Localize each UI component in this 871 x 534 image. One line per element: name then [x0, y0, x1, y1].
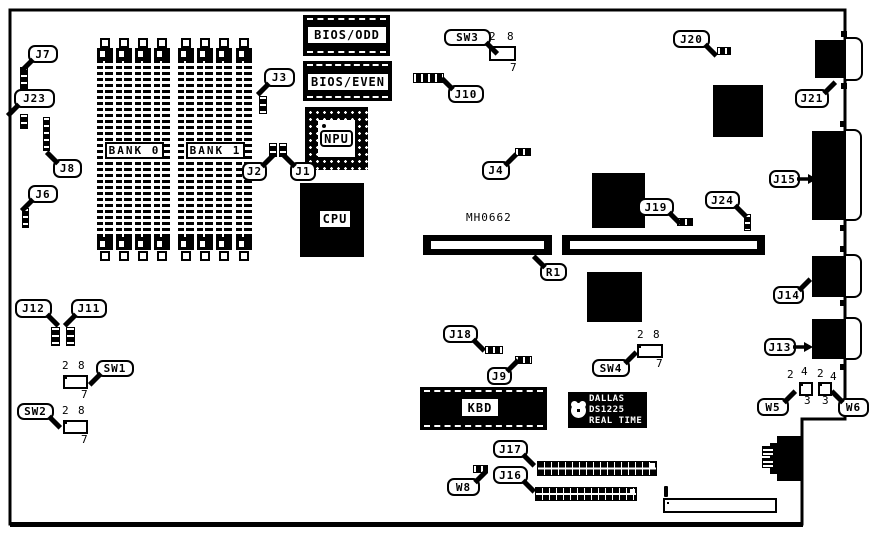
simm-mount-top [138, 38, 148, 48]
callout-j12: J12 [15, 299, 52, 318]
bank-0-label: BANK 0 [105, 142, 164, 159]
slot-left [423, 235, 552, 255]
power-connector-pins [664, 486, 777, 498]
din-pin-1 [762, 458, 774, 468]
callout-j8: J8 [53, 159, 82, 178]
callout-j15: J15 [769, 170, 800, 188]
simm-mount-bottom [157, 251, 167, 261]
keyboard-din-connector-mid [770, 443, 801, 474]
callout-sw2: SW2 [17, 403, 54, 420]
pin-number-label-6: 2 [62, 406, 69, 416]
simm-cap-top [197, 48, 213, 61]
simm-cap-bottom [178, 237, 194, 250]
dallas-chip-text: DALLAS DS1225 REAL TIME [589, 394, 642, 427]
callout-j9: J9 [487, 367, 512, 385]
bank-1-label: BANK 1 [186, 142, 245, 159]
cpu-chip-label: CPU [320, 211, 350, 227]
edge-screw-0 [841, 31, 847, 37]
simm-mount-top [239, 38, 249, 48]
simm-mount-bottom [138, 251, 148, 261]
pin-number-label-11: 7 [656, 359, 663, 369]
callout-j4: J4 [482, 161, 510, 180]
callout-j3: J3 [264, 68, 295, 87]
callout-sw1: SW1 [96, 360, 134, 377]
callout-j18: J18 [443, 325, 478, 343]
slot-right-inner [570, 241, 757, 249]
power-cell-11 [667, 502, 669, 504]
sw1-block-cell-4 [65, 377, 67, 379]
pin-number-label-7: 8 [78, 406, 85, 416]
j8-header [43, 117, 50, 151]
simm-cap-top [135, 48, 151, 61]
simm-cap-bottom [97, 237, 113, 250]
pin-number-label-2: 7 [510, 63, 517, 73]
slot-right [562, 235, 765, 255]
j21-connector-body [815, 40, 844, 78]
j18-header [485, 346, 503, 354]
pin-number-label-12: 2 [787, 370, 794, 380]
simm-mount-top [157, 38, 167, 48]
edge-screw-6 [840, 364, 846, 370]
callout-j6: J6 [28, 185, 58, 203]
sw2-block [63, 420, 88, 434]
npu-chip-pin1-dot [322, 124, 326, 128]
board-bottom-edge [10, 522, 803, 527]
simm-mount-top [100, 38, 110, 48]
simm-mount-bottom [219, 251, 229, 261]
j17-header [537, 461, 657, 476]
npu-chip-label: NPU [320, 130, 353, 147]
dallas-rtc-chip: DALLAS DS1225 REAL TIME [568, 392, 647, 428]
j20-header [717, 47, 731, 55]
slot-part-number-label: MH0662 [466, 211, 512, 224]
chip-2 [592, 173, 645, 228]
simm-mount-bottom [181, 251, 191, 261]
callout-j21: J21 [795, 89, 829, 108]
callout-j17: J17 [493, 440, 528, 458]
pin-number-label-9: 2 [637, 330, 644, 340]
pin-number-label-3: 2 [62, 361, 69, 371]
j21-connector-shell [844, 37, 863, 81]
bios-odd-chip-label: BIOS/ODD [308, 27, 386, 43]
j12-jumper [51, 327, 60, 346]
callout-w8: W8 [447, 478, 480, 496]
j16-header [535, 487, 637, 501]
edge-screw-1 [841, 83, 847, 89]
simm-mount-top [219, 38, 229, 48]
simm-mount-bottom [119, 251, 129, 261]
simm-mount-bottom [200, 251, 210, 261]
simm-mount-top [181, 38, 191, 48]
chip-3 [587, 272, 642, 322]
callout-j16: J16 [493, 466, 528, 484]
pin-number-label-17: 3 [822, 396, 829, 406]
j10-header [413, 73, 444, 83]
simm-mount-top [200, 38, 210, 48]
callout-j24: J24 [705, 191, 740, 209]
sw4-block [637, 344, 663, 358]
w6-block-cell-2 [820, 384, 822, 386]
simm-cap-top [154, 48, 170, 61]
j13-connector-shell [844, 317, 862, 360]
pin-number-label-16: 4 [830, 372, 837, 382]
bios-even-chip-label: BIOS/EVEN [308, 74, 388, 90]
callout-j11: J11 [71, 299, 107, 318]
pin-number-label-4: 8 [78, 361, 85, 371]
j15-connector-shell [844, 129, 862, 221]
chip-1 [713, 85, 763, 137]
callout-sw4: SW4 [592, 359, 630, 377]
simm-cap-bottom [236, 237, 252, 250]
callout-j13: J13 [764, 338, 796, 356]
simm-cap-bottom [116, 237, 132, 250]
callout-j7: J7 [28, 45, 58, 63]
simm-mount-bottom [239, 251, 249, 261]
simm-cap-top [216, 48, 232, 61]
j3-header [259, 96, 267, 114]
callout-j20: J20 [673, 30, 710, 48]
pin-number-label-5: 7 [81, 390, 88, 400]
callout-j10: J10 [448, 85, 484, 103]
pin-number-label-15: 2 [817, 369, 824, 379]
simm-cap-bottom [154, 237, 170, 250]
j15-connector-body [812, 131, 844, 220]
clock-icon [571, 403, 586, 418]
kbd-chip-label: KBD [462, 399, 498, 416]
simm-cap-bottom [197, 237, 213, 250]
dallas-part-number: DS1225 [589, 405, 642, 416]
callout-j19: J19 [638, 198, 674, 216]
dallas-type: REAL TIME [589, 416, 642, 427]
power-pin-11 [664, 486, 668, 497]
callout-j2: J2 [242, 162, 267, 181]
callout-r1: R1 [540, 263, 567, 281]
edge-screw-3 [840, 225, 846, 231]
callout-j1: J1 [290, 162, 316, 181]
pin-number-label-8: 7 [81, 435, 88, 445]
simm-cap-top [116, 48, 132, 61]
pin-number-label-1: 8 [507, 32, 514, 42]
callout-sw3: SW3 [444, 29, 491, 46]
pin-number-label-10: 8 [653, 330, 660, 340]
motherboard-diagram: MH0662 DALLAS DS1225 REAL TIME BANK 0BAN… [0, 0, 871, 534]
sw1-block [63, 375, 88, 389]
j17-header-pin1 [650, 463, 655, 468]
j14-connector-body [812, 256, 844, 297]
edge-screw-2 [840, 121, 846, 127]
simm-mount-bottom [100, 251, 110, 261]
callout-w5: W5 [757, 398, 789, 416]
slot-left-inner [431, 241, 544, 249]
sw2-block-cell-4 [65, 422, 67, 424]
j23-jumper [20, 114, 28, 129]
j13-connector-body [812, 319, 844, 359]
simm-cap-top [178, 48, 194, 61]
j11-jumper [66, 327, 75, 346]
j14-connector-shell [844, 254, 862, 298]
simm-cap-bottom [135, 237, 151, 250]
simm-cap-top [236, 48, 252, 61]
dallas-brand: DALLAS [589, 394, 642, 405]
j16-header-pin1 [630, 489, 635, 494]
sw4-block-cell-4 [639, 346, 641, 348]
power-connector-box [663, 498, 777, 513]
din-pin-0 [762, 446, 774, 456]
pin-number-label-14: 3 [804, 396, 811, 406]
edge-screw-4 [840, 246, 846, 252]
callout-w6: W6 [838, 398, 869, 417]
simm-cap-top [97, 48, 113, 61]
w5-block-cell-2 [801, 384, 803, 386]
edge-screw-5 [840, 300, 846, 306]
callout-j23: J23 [14, 89, 55, 108]
simm-mount-top [119, 38, 129, 48]
pin-number-label-13: 4 [801, 367, 808, 377]
callout-j14: J14 [773, 286, 804, 304]
simm-cap-bottom [216, 237, 232, 250]
